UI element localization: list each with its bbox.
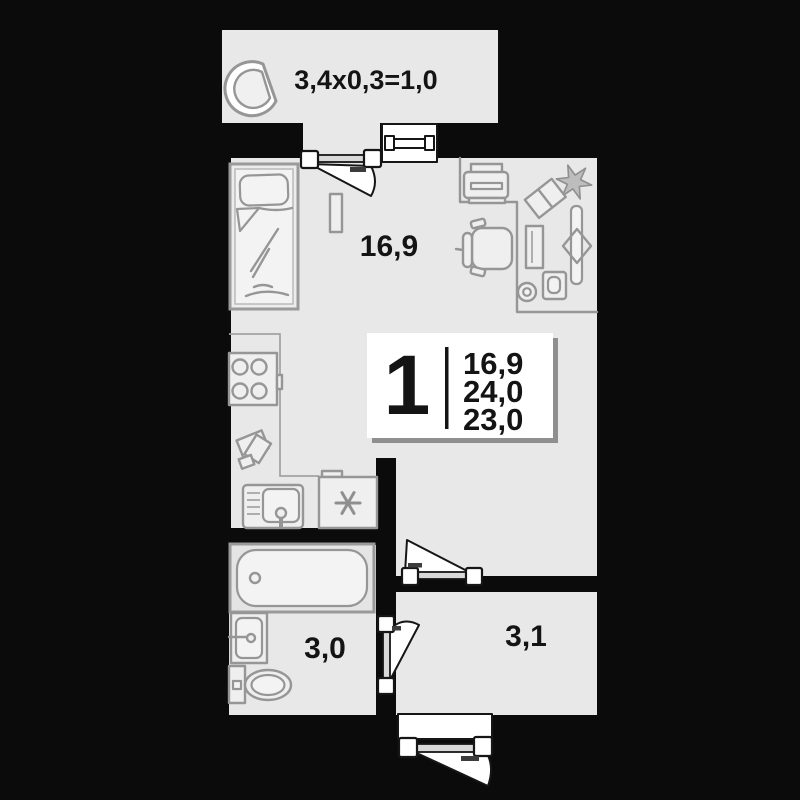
washbasin-icon [229, 613, 267, 663]
printer-icon [464, 164, 508, 203]
bathtub-icon [230, 544, 374, 612]
kitchen-sink-icon [243, 485, 303, 528]
stove-icon [229, 353, 282, 405]
reduced-area-value: 23,0 [463, 402, 523, 437]
hallway-area-label: 3,1 [505, 620, 547, 653]
nightstand-icon [330, 194, 342, 232]
wall-living-bathroom [194, 528, 396, 545]
living-room-area-label: 16,9 [360, 230, 418, 263]
monitor-icon [526, 226, 543, 268]
bathroom-area-label: 3,0 [304, 632, 346, 665]
balcony-dimension-label: 3,4x0,3=1,0 [294, 65, 437, 95]
info-plate: 1 16,9 24,0 23,0 [367, 333, 558, 443]
room-count: 1 [384, 338, 431, 432]
mousepad-icon [543, 272, 566, 299]
floor-plan-canvas: 3,4x0,3=1,0 [0, 0, 800, 800]
floor-plan: 3,4x0,3=1,0 [0, 0, 800, 800]
cup-icon [518, 283, 536, 301]
window-icon [382, 124, 437, 162]
bed-icon [230, 164, 298, 309]
info-plate-divider [445, 347, 449, 429]
hallway-floor [396, 592, 597, 715]
fridge-icon [319, 471, 377, 528]
